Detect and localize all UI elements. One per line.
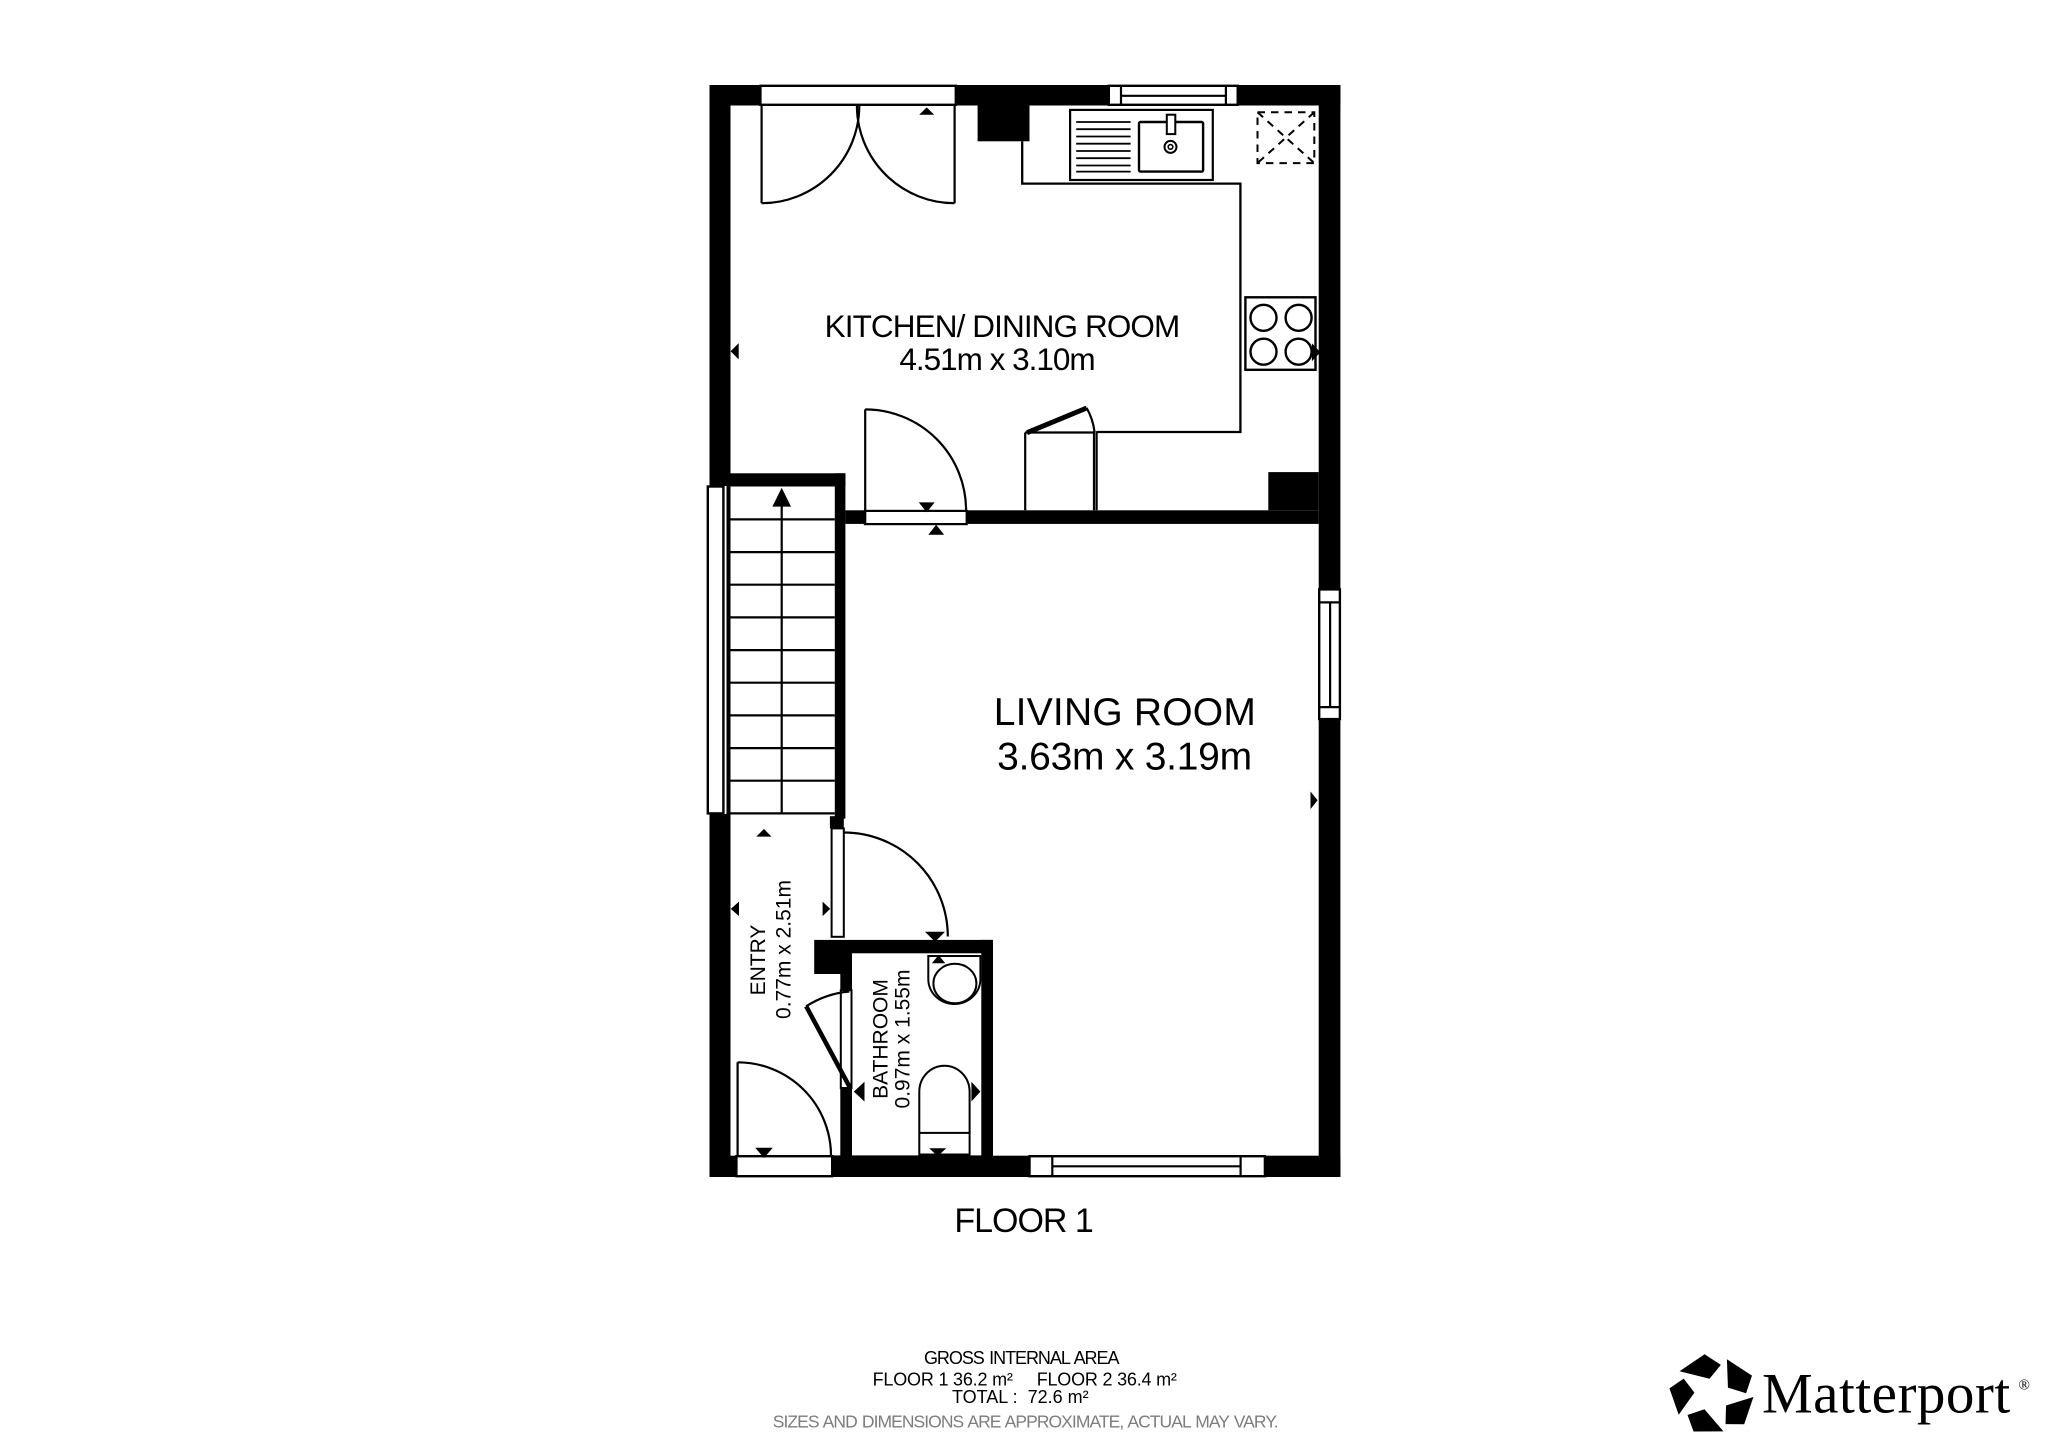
- svg-text:FLOOR 1: FLOOR 1: [954, 1202, 1093, 1240]
- svg-text:Matterport: Matterport: [1762, 1363, 2011, 1426]
- svg-text:KITCHEN/ DINING ROOM: KITCHEN/ DINING ROOM: [825, 308, 1180, 344]
- svg-text:4.51m x 3.10m: 4.51m x 3.10m: [899, 341, 1094, 377]
- svg-text:0.77m x 2.51m: 0.77m x 2.51m: [772, 880, 795, 1019]
- svg-text:0.97m x 1.55m: 0.97m x 1.55m: [892, 970, 915, 1109]
- svg-text:LIVING ROOM: LIVING ROOM: [994, 691, 1256, 734]
- svg-text:SIZES AND DIMENSIONS ARE APPRO: SIZES AND DIMENSIONS ARE APPROXIMATE, AC…: [773, 1412, 1278, 1432]
- svg-text:BATHROOM: BATHROOM: [870, 979, 893, 1099]
- svg-text:TOTAL : 72.6 m²: TOTAL : 72.6 m²: [952, 1387, 1089, 1407]
- svg-text:®: ®: [2019, 1378, 2030, 1394]
- svg-text:ENTRY: ENTRY: [747, 925, 770, 996]
- svg-text:GROSS INTERNAL AREA: GROSS INTERNAL AREA: [924, 1348, 1119, 1368]
- svg-text:3.63m x 3.19m: 3.63m x 3.19m: [997, 736, 1252, 779]
